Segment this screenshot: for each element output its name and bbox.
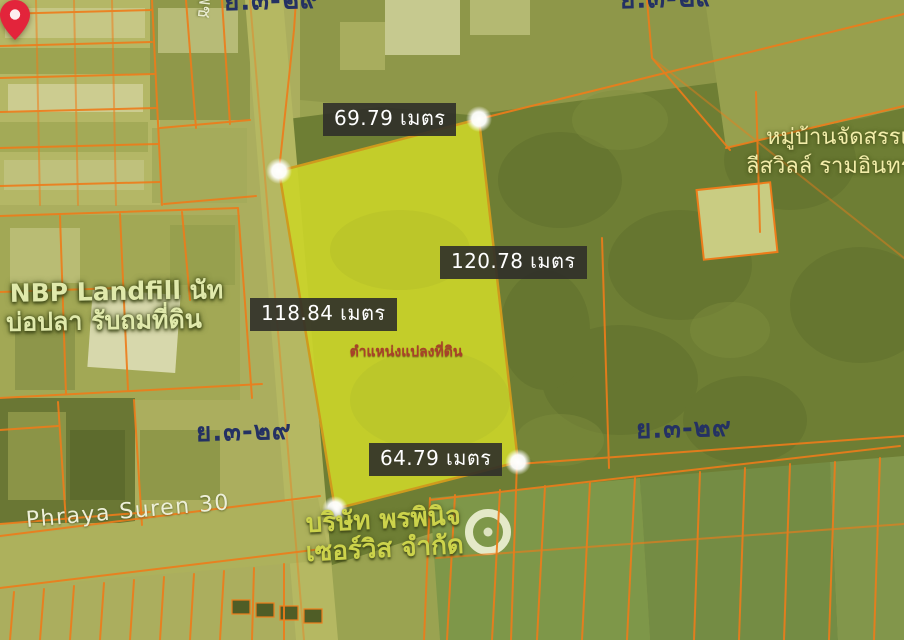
zoning-label-right: ย.๓-๒๙ [635,407,732,450]
pin-caption: ตำแหน่งแปลงที่ดิน [336,341,476,363]
company-label: บริษัท พรพินิจ เซอร์วิส จำกัด [293,501,476,568]
zoning-label-top-left: ย.๓-๒๙ [223,0,320,22]
nbp-landfill-line1: NBP Landfill นัท [6,276,224,308]
location-pin-icon[interactable] [0,0,30,40]
village-line1: หมู่บ้านจัดสรรเ [746,124,904,153]
village-label: หมู่บ้านจัดสรรเ ลีสวิลล์ รามอินทรา. [746,124,904,181]
map-viewport[interactable]: NBP Landfill นัท บ่อปลา รับถมที่ดิน หมู่… [0,0,904,640]
vertex-dot-top-right[interactable] [466,106,492,132]
nbp-landfill-label: NBP Landfill นัท บ่อปลา รับถมที่ดิน [6,276,224,337]
zoning-label-top-right: ย.๓-๒๙ [619,0,716,20]
measurement-label-right: 120.78 เมตร [440,246,587,279]
village-line2: ลีสวิลล์ รามอินทรา. [746,153,904,182]
vertex-dot-bottom-right[interactable] [505,449,531,475]
nbp-landfill-line2: บ่อปลา รับถมที่ดิน [6,305,224,337]
measurement-label-top: 69.79 เมตร [323,103,456,136]
zoning-label-left: ย.๓-๒๙ [195,410,292,453]
road-label-vertical: เพช [189,0,222,20]
vertex-dot-top-left[interactable] [266,158,292,184]
measurement-label-left: 118.84 เมตร [250,298,397,331]
measurement-label-bottom: 64.79 เมตร [369,443,502,476]
